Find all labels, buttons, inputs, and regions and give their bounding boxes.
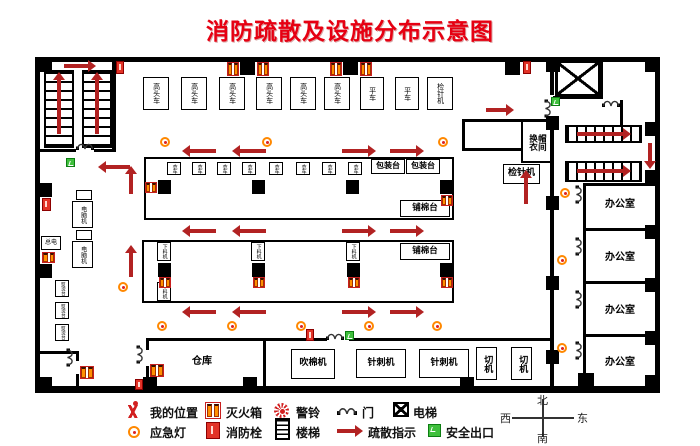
fire-extinguisher-box-icon [348, 277, 360, 288]
fire-extinguisher-box-icon [257, 62, 269, 76]
wall [462, 148, 524, 151]
machine-box: 切机 [511, 347, 532, 380]
emergency-light-icon [227, 321, 237, 331]
evacuation-arrow-icon [390, 229, 416, 233]
column-pillar [645, 225, 658, 239]
evacuation-arrow-icon [342, 229, 368, 233]
column-pillar [546, 350, 559, 364]
wall [35, 386, 660, 393]
fire-extinguisher-box-icon [330, 62, 342, 76]
safe-exit-icon [66, 158, 75, 167]
room-label-office: 办公室 [596, 197, 644, 213]
wall [620, 100, 623, 127]
wall [349, 338, 552, 341]
evacuation-arrow-icon [190, 310, 216, 314]
emergency-light-icon [432, 321, 442, 331]
wall [263, 338, 266, 388]
fire-hydrant-icon [523, 61, 531, 74]
wall [76, 374, 79, 392]
machine-box: 熨烫台 [55, 324, 69, 341]
legend-label: 安全出口 [446, 424, 494, 441]
door-icon [602, 98, 620, 107]
person-icon [126, 401, 140, 419]
fire-extinguisher-box-icon [80, 366, 94, 379]
machine-box: 下料机 [157, 242, 171, 261]
evacuation-arrow-icon [342, 149, 368, 153]
door-icon [337, 405, 357, 415]
emergency-light-icon [560, 188, 570, 198]
legend-label: 我的位置 [150, 404, 198, 421]
column-pillar [38, 377, 52, 391]
evacuation-arrow-icon [524, 178, 528, 204]
column-pillar [645, 122, 658, 136]
emergency-light-icon [557, 343, 567, 353]
machine-box: 熨烫台 [55, 302, 69, 319]
machine-box: 衣车 [296, 162, 310, 175]
legend-label: 疏散指示 [368, 424, 416, 441]
evacuation-arrow-icon [390, 310, 416, 314]
evacuation-arrow-icon [577, 169, 623, 173]
machine-box: 衣车 [192, 162, 206, 175]
fire-extinguisher-box-icon [360, 62, 372, 76]
wall [146, 338, 266, 341]
column-pillar [645, 375, 658, 390]
machine-box: 下料机 [251, 242, 265, 261]
wall [38, 149, 76, 152]
evacuation-arrow-icon [240, 149, 266, 153]
machine-box: 平车 [360, 77, 384, 110]
fire-hydrant-icon [135, 379, 143, 390]
legend-label: 灭火箱 [226, 404, 262, 421]
machine-box: 下料机 [346, 242, 360, 261]
column-pillar [546, 116, 559, 130]
column-pillar [252, 180, 265, 194]
legend-label: 应急灯 [150, 424, 186, 441]
room-label-cloak-room: 换衣帽间 [523, 130, 550, 154]
evacuation-arrow-icon [64, 64, 88, 68]
machine-box: 电脑机 [72, 241, 93, 268]
column-pillar [143, 377, 157, 391]
column-pillar [38, 264, 52, 278]
wall [94, 149, 114, 152]
evacuation-arrow-icon [129, 253, 133, 277]
legend-label: 门 [362, 404, 374, 421]
column-pillar [38, 183, 52, 197]
column-pillar [505, 60, 520, 75]
evacuation-arrow-icon [486, 108, 506, 112]
evacuation-arrow-icon [190, 149, 216, 153]
evacuation-arrow-icon [57, 80, 61, 134]
emergency-light-icon [160, 137, 170, 147]
evacuation-arrow-icon [390, 149, 416, 153]
wall [146, 338, 149, 350]
column-pillar [440, 180, 453, 194]
machine-box: 包装台 [371, 159, 405, 174]
machine-box: 总电 [41, 236, 61, 250]
stairs-icon [275, 418, 290, 440]
machine-box: 衣车 [167, 162, 181, 175]
machine-box: 高头车 [143, 77, 169, 110]
machine-box: 切机 [476, 347, 497, 380]
compass-west: 西 [500, 410, 511, 426]
machine-box [76, 190, 92, 200]
machine-box [76, 230, 92, 240]
emergency-light-icon [557, 255, 567, 265]
machine-box: 针刺机 [419, 349, 469, 378]
column-pillar [578, 373, 594, 392]
machine-box: 包装台 [406, 159, 440, 174]
machine-box: 高头车 [181, 77, 207, 110]
machine-box: 平车 [395, 77, 419, 110]
emergency-light-icon [438, 137, 448, 147]
alarm-bell-icon [274, 403, 289, 418]
machine-box: 检针机 [427, 77, 453, 110]
column-pillar [440, 263, 453, 277]
machine-box: 电脑机 [72, 201, 93, 228]
emergency-light-icon [296, 321, 306, 331]
room-label-warehouse: 仓库 [180, 354, 224, 370]
column-pillar [460, 377, 474, 391]
emergency-light-icon [364, 321, 374, 331]
machine-box: 吹棉机 [291, 349, 335, 379]
safe-exit-icon [345, 331, 354, 340]
evacuation-arrow-icon [240, 310, 266, 314]
column-pillar [158, 180, 171, 194]
fire-extinguisher-box-icon [145, 182, 157, 193]
machine-box: 针刺机 [356, 349, 406, 378]
evacuation-arrow-icon [240, 229, 266, 233]
wall [462, 119, 552, 122]
fire-extinguisher-box-icon [253, 277, 265, 288]
column-pillar [252, 263, 265, 277]
wall [462, 119, 465, 150]
column-pillar [343, 60, 358, 75]
column-pillar [645, 278, 658, 292]
room-label-office: 办公室 [596, 355, 644, 371]
machine-box: 衣车 [322, 162, 336, 175]
fire-extinguisher-box-icon [42, 252, 55, 263]
compass-north: 北 [537, 392, 548, 408]
column-pillar [546, 196, 559, 210]
legend-label: 楼梯 [296, 424, 320, 441]
elevator-icon [393, 402, 409, 417]
evacuation-arrow-icon [648, 143, 652, 161]
wall [521, 161, 552, 163]
door-icon [576, 342, 585, 360]
door-icon [326, 331, 344, 340]
column-pillar [346, 180, 359, 194]
door-icon [576, 291, 585, 309]
emergency-light-icon [262, 137, 272, 147]
machine-box: 衣车 [242, 162, 256, 175]
machine-box: 衣车 [348, 162, 362, 175]
door-icon [137, 346, 146, 364]
door-icon [545, 100, 554, 118]
column-pillar [645, 170, 658, 184]
room-label-office: 办公室 [596, 303, 644, 319]
evacuation-arrow-icon [577, 132, 623, 136]
safe-exit-icon [428, 424, 441, 437]
door-icon [576, 186, 585, 204]
machine-box: 高头车 [256, 77, 282, 110]
fire-extinguisher-box-icon [159, 277, 171, 288]
column-pillar [347, 263, 360, 277]
fire-hydrant-icon [42, 198, 51, 211]
wall [263, 338, 327, 341]
legend-label: 电梯 [413, 404, 437, 421]
machine-box: 衣车 [217, 162, 231, 175]
machine-box: 高头车 [324, 77, 350, 110]
fire-extinguisher-box-icon [441, 277, 453, 288]
column-pillar [645, 58, 658, 72]
emergency-light-icon [118, 282, 128, 292]
legend-label: 消防栓 [226, 424, 262, 441]
wall [583, 183, 586, 392]
door-icon [76, 141, 94, 150]
fire-extinguisher-box-icon [205, 402, 221, 419]
fire-extinguisher-box-icon [227, 62, 239, 76]
fire-extinguisher-box-icon [150, 364, 164, 377]
evacuation-arrow-icon [337, 429, 355, 433]
fire-extinguisher-box-icon [441, 195, 453, 206]
column-pillar [546, 276, 559, 290]
column-pillar [240, 60, 255, 75]
compass-east: 东 [577, 410, 588, 426]
door-icon [67, 349, 76, 367]
evacuation-arrow-icon [342, 310, 368, 314]
machine-box: 熨烫台 [55, 280, 69, 297]
machine-box: 衣车 [269, 162, 283, 175]
door-icon [576, 238, 585, 256]
evacuation-arrow-icon [95, 80, 99, 134]
column-pillar [158, 263, 171, 277]
fire-hydrant-icon [116, 61, 124, 74]
legend-label: 警铃 [296, 404, 320, 421]
column-pillar [645, 331, 658, 345]
elevator-shaft [555, 60, 601, 97]
compass-south: 南 [537, 430, 548, 446]
emergency-light-icon [128, 426, 140, 438]
room-label-office: 办公室 [596, 250, 644, 266]
column-pillar [243, 377, 257, 391]
machine-box: 高头车 [219, 77, 245, 110]
fire-hydrant-icon [206, 422, 220, 439]
wall [35, 57, 40, 393]
evacuation-arrow-icon [129, 174, 133, 194]
wall [76, 351, 79, 361]
column-pillar [38, 58, 52, 72]
evacuation-arrow-icon [190, 229, 216, 233]
fire-hydrant-icon [306, 329, 314, 341]
machine-box: 高头车 [290, 77, 316, 110]
machine-box: 铺棉台 [400, 243, 450, 260]
emergency-light-icon [157, 321, 167, 331]
diagram-title: 消防疏散及设施分布示意图 [0, 12, 700, 46]
